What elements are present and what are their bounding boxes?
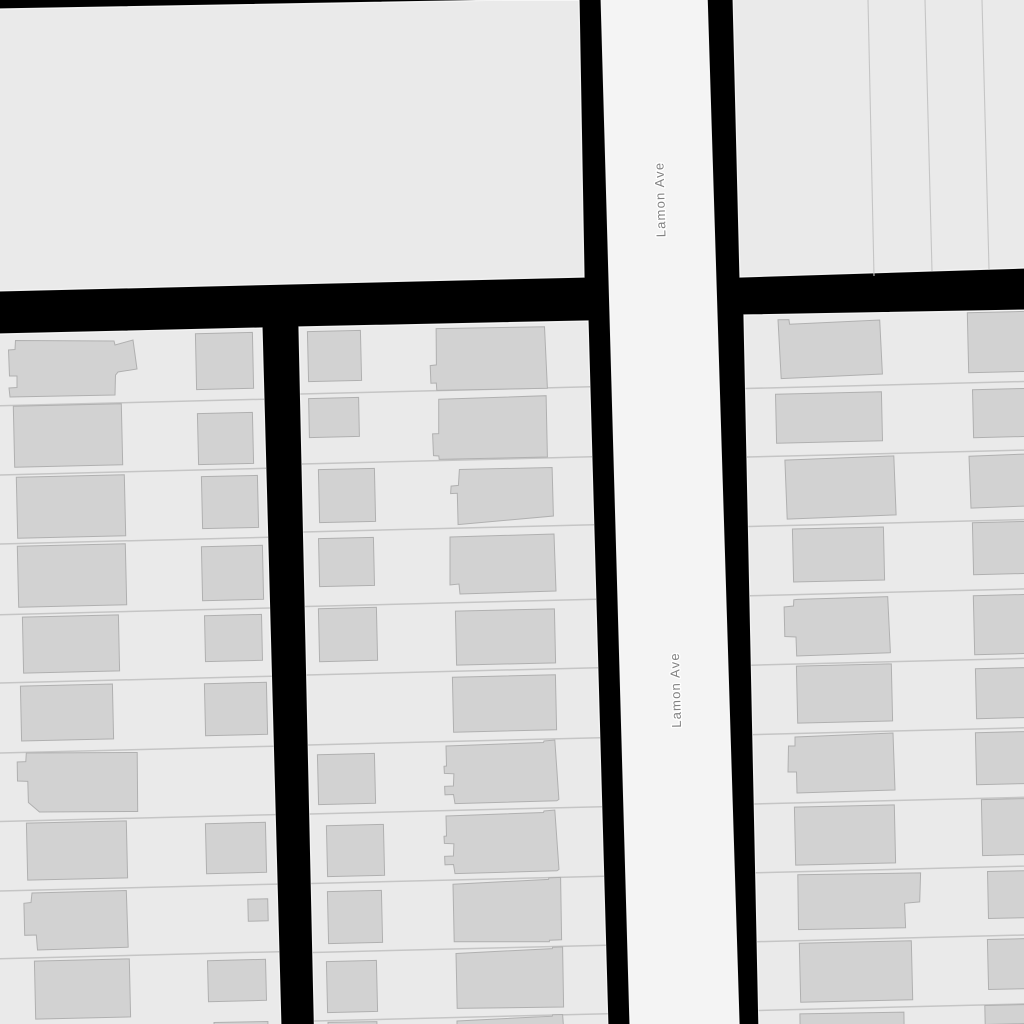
svg-text:Lamon Ave: Lamon Ave xyxy=(667,652,684,728)
svg-text:Lamon Ave: Lamon Ave xyxy=(651,161,668,237)
